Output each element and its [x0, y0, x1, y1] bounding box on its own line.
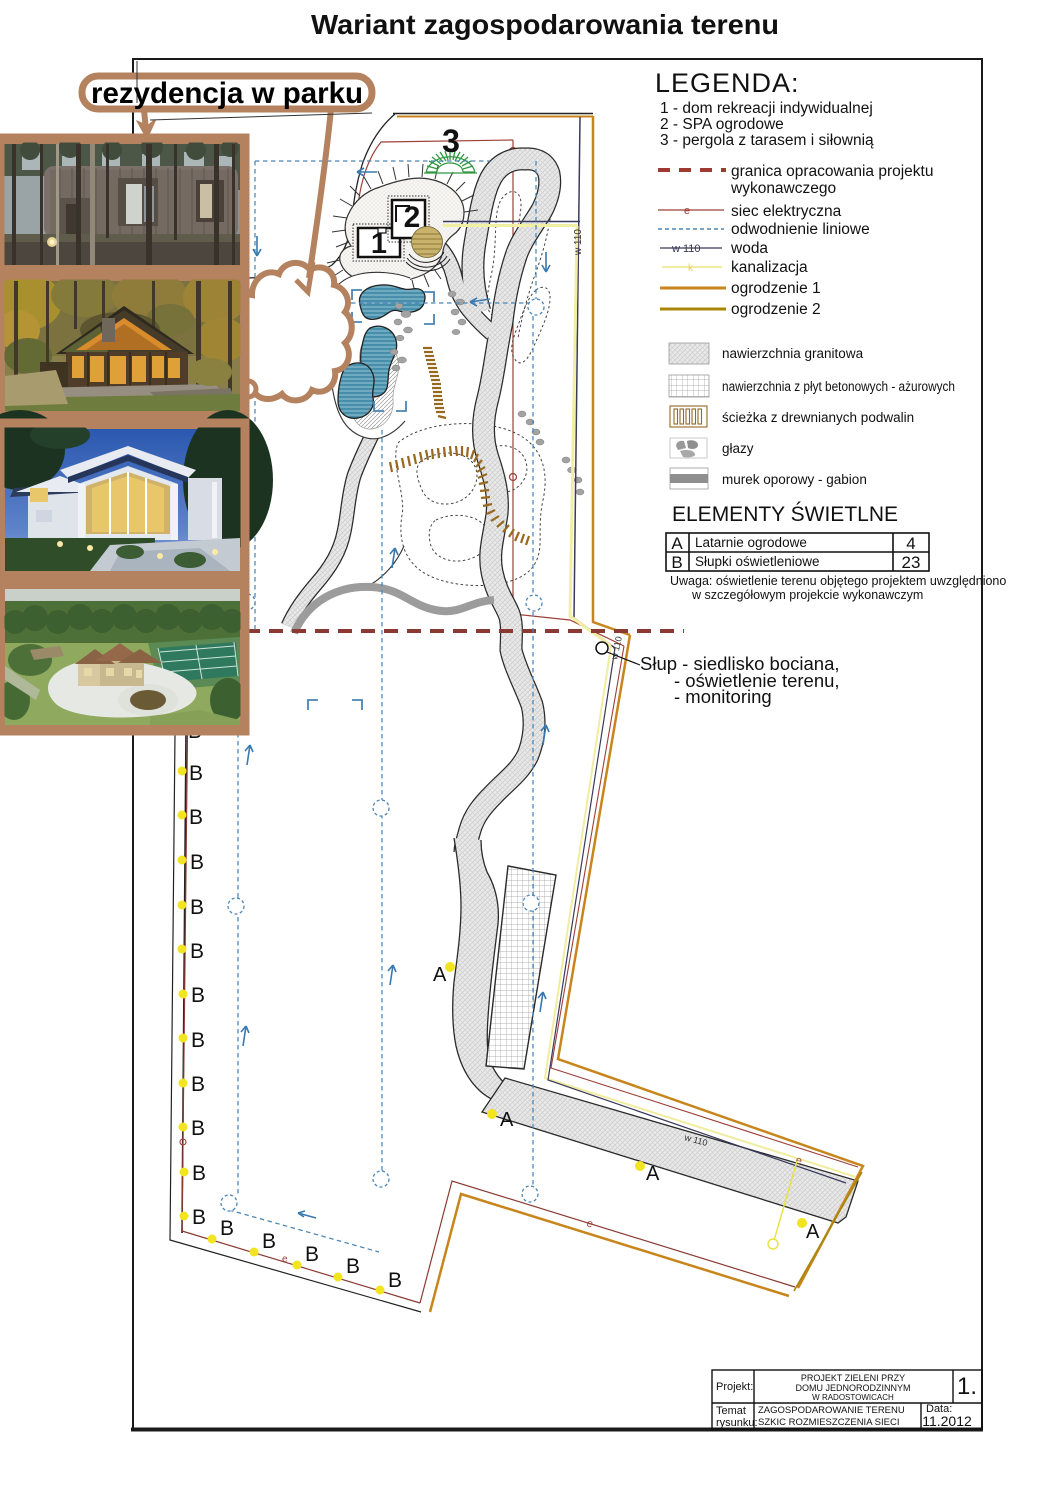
svg-text:1: 1 [371, 228, 387, 260]
svg-text:Latarnie ogrodowe: Latarnie ogrodowe [695, 535, 807, 550]
svg-text:głazy: głazy [722, 441, 754, 456]
svg-text:rezydencja w parku: rezydencja w parku [91, 77, 363, 110]
svg-text:11.2012: 11.2012 [922, 1413, 972, 1429]
svg-text:PROJEKT ZIELENI PRZY: PROJEKT ZIELENI PRZY [801, 1373, 905, 1383]
svg-text:B: B [191, 1117, 205, 1140]
svg-text:W RADOSTOWICACH: W RADOSTOWICACH [812, 1393, 894, 1402]
svg-text:murek oporowy - gabion: murek oporowy - gabion [722, 472, 867, 487]
svg-text:Słupki oświetleniowe: Słupki oświetleniowe [695, 554, 820, 569]
svg-text:LEGENDA:: LEGENDA: [655, 68, 800, 98]
svg-text:wykonawczego: wykonawczego [730, 180, 836, 197]
svg-text:- monitoring: - monitoring [674, 686, 772, 707]
svg-text:ogrodzenie 1: ogrodzenie 1 [731, 280, 821, 297]
svg-text:23: 23 [902, 553, 921, 572]
svg-text:DOMU JEDNORODZINNYM: DOMU JEDNORODZINNYM [796, 1383, 911, 1393]
svg-text:granica opracowania projektu: granica opracowania projektu [731, 163, 933, 180]
svg-text:ogrodzenie 2: ogrodzenie 2 [731, 301, 821, 318]
svg-text:w szczegółowym projekcie wykon: w szczegółowym projekcie wykonawczym [691, 588, 923, 602]
svg-text:e: e [282, 1254, 288, 1265]
svg-text:B: B [189, 806, 203, 829]
svg-text:B: B [191, 984, 205, 1007]
svg-text:A: A [806, 1221, 820, 1243]
svg-text:B: B [190, 851, 204, 874]
svg-text:SZKIC ROZMIESZCZENIA SIECI: SZKIC ROZMIESZCZENIA SIECI [758, 1417, 899, 1428]
svg-text:B: B [671, 553, 682, 572]
svg-text:Wariant zagospodarowania teren: Wariant zagospodarowania terenu [311, 9, 779, 40]
svg-text:odwodnienie liniowe: odwodnienie liniowe [731, 221, 870, 238]
svg-text:B: B [388, 1269, 402, 1292]
svg-text:3 - pergola z tarasem i siłown: 3 - pergola z tarasem i siłownią [660, 132, 874, 149]
svg-text:siec elektryczna: siec elektryczna [731, 203, 842, 220]
svg-text:B: B [262, 1230, 276, 1253]
svg-text:w 110: w 110 [573, 229, 584, 256]
svg-text:B: B [190, 896, 204, 919]
svg-text:B: B [191, 1029, 205, 1052]
svg-text:A: A [500, 1109, 514, 1131]
svg-text:Projekt:: Projekt: [716, 1381, 753, 1393]
svg-text:B: B [192, 1206, 206, 1229]
svg-text:B: B [220, 1217, 234, 1240]
svg-text:rysunku:: rysunku: [716, 1417, 758, 1429]
svg-text:1.: 1. [957, 1373, 977, 1400]
svg-text:w 110: w 110 [671, 243, 701, 255]
svg-text:1 - dom rekreacji indywidualne: 1 - dom rekreacji indywidualnej [660, 100, 873, 117]
svg-text:A: A [671, 534, 683, 553]
svg-text:ścieżka z drewnianych podwalin: ścieżka z drewnianych podwalin [722, 410, 914, 425]
svg-text:kanalizacja: kanalizacja [731, 259, 808, 276]
svg-text:2 - SPA ogrodowe: 2 - SPA ogrodowe [660, 116, 784, 133]
svg-text:4: 4 [906, 534, 915, 553]
svg-text:B: B [346, 1255, 360, 1278]
svg-text:ELEMENTY ŚWIETLNE: ELEMENTY ŚWIETLNE [672, 502, 898, 526]
svg-text:B: B [191, 1073, 205, 1096]
svg-text:A: A [646, 1163, 660, 1185]
svg-text:B: B [192, 1162, 206, 1185]
svg-text:A: A [433, 964, 447, 986]
svg-text:Temat: Temat [716, 1405, 746, 1417]
svg-text:woda: woda [730, 240, 768, 257]
svg-text:ZAGOSPODAROWANIE TERENU: ZAGOSPODAROWANIE TERENU [758, 1405, 905, 1416]
svg-text:nawierzchnia granitowa: nawierzchnia granitowa [722, 346, 864, 361]
svg-text:B: B [305, 1243, 319, 1266]
svg-text:B: B [189, 762, 203, 785]
svg-text:nawierzchnia z płyt betonowych: nawierzchnia z płyt betonowych - ażurowy… [722, 379, 955, 394]
svg-text:3: 3 [442, 123, 460, 159]
svg-text:e: e [684, 205, 690, 217]
svg-text:Uwaga: oświetlenie terenu obj: Uwaga: oświetlenie terenu objętego proje… [670, 574, 1006, 588]
svg-text:B: B [190, 940, 204, 963]
